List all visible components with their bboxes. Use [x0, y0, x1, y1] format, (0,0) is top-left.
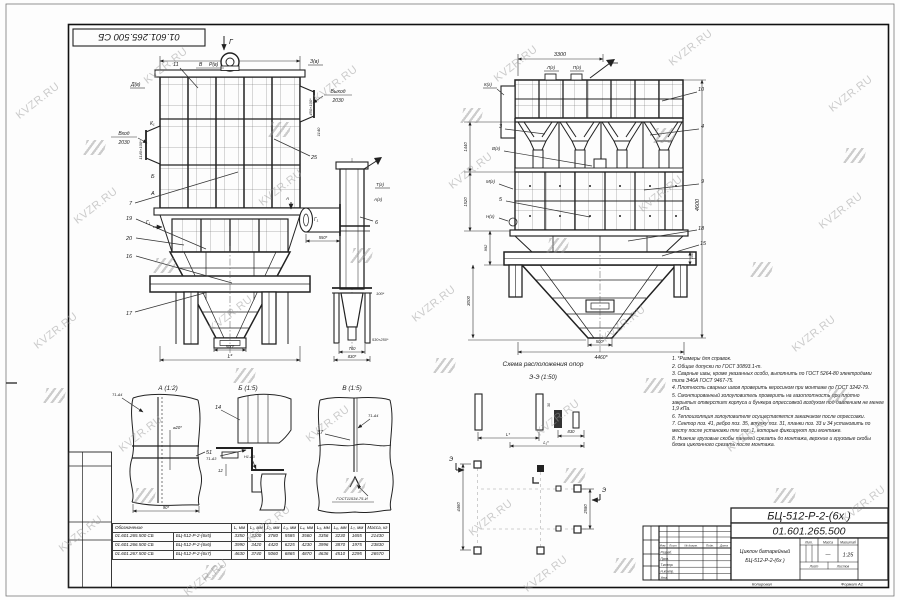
table-cell: 3230 [332, 532, 349, 541]
dim-1140-right: 1140 [316, 127, 321, 136]
pos-15: 15 [700, 241, 707, 247]
detail-v-title: В (1:5) [342, 385, 362, 392]
title-block: Изм. Лист № докум. Подп. Дата Разраб. Пр… [643, 508, 888, 587]
detail-a-dim1: ⌀20* [173, 425, 182, 430]
detail-v-weld: Т1-Δ4 [368, 414, 378, 418]
sig-nkontr: Н.контр. [661, 570, 675, 574]
right-view-drawing: 3300 [463, 52, 707, 361]
top-left-stamp: 01.601.265.500 СБ [73, 29, 205, 46]
table-cell: БЦ-512-Р-2-(6х7) [173, 550, 231, 559]
drawing-sheet: 01.601.265.500 СБ L₄ Г [0, 0, 900, 600]
outlet-label: Выход [330, 89, 345, 95]
pos-4: 4 [701, 124, 704, 130]
mark-mg: М(г) [486, 179, 495, 184]
col-L6: L₆, мм [332, 524, 349, 533]
section-mark-a-pipe: А [285, 196, 289, 201]
table-cell: 3780 [265, 532, 282, 541]
scale-label: Масштаб [840, 541, 856, 545]
table-cell: 3990 [231, 541, 248, 550]
scheme-subtitle: Э-Э (1:50) [529, 375, 557, 381]
detail-a-pos: 51 [206, 450, 212, 456]
scheme-dim-l: L* [506, 432, 510, 437]
stamp-code: 01.601.265.500 СБ [98, 31, 180, 42]
note-item: 8. Нижние грузовые скобы панелей срезать… [672, 436, 884, 449]
table-header-row: Обозначение L, мм L₁, мм L₂, мм L₃, мм L… [113, 524, 390, 533]
pos-19: 19 [126, 216, 132, 222]
pos-5: 5 [499, 197, 503, 203]
table-cell: 3356 [315, 532, 332, 541]
table-cell: 3100 [248, 532, 265, 541]
chg-list: Лист [668, 544, 677, 548]
detail-b-weld1: Т1-Δ3 [206, 457, 217, 461]
table-cell: 6865 [281, 550, 298, 559]
table-row: 01.601.266.500 СББЦ-512-Р-2-(6х6)3990342… [113, 541, 390, 550]
table-cell: 4420 [265, 541, 282, 550]
part-name-2: БЦ-512-Р-2-(6х ) [745, 558, 785, 564]
mass-value: — [825, 552, 832, 558]
dim-1520: 1520 [463, 197, 468, 207]
section-mark-g1-left: Г₁ [146, 220, 151, 226]
scheme-dim-830: 830 [568, 429, 576, 434]
detail-b-title: Б (1:5) [238, 385, 257, 392]
sig-utv: Утв. [661, 576, 668, 580]
scheme-dim-l1: L₁* [543, 440, 549, 445]
sig-tkontr: Т.контр. [661, 563, 674, 567]
scheme-mark-e1: Э [449, 457, 453, 463]
mark-pg: П(г) [573, 65, 582, 70]
table-cell: 4870 [298, 550, 315, 559]
table-cell: 3350 [231, 532, 248, 541]
table-row: 01.601.265.500 СББЦ-512-Р-2-(6х5)3350310… [113, 532, 390, 541]
note-item: 6. Теплоизоляция золоуловителя осуществл… [672, 414, 884, 421]
note-item: 5. Смонтированный золоуловитель проверит… [672, 393, 884, 413]
table-cell: 26570 [365, 550, 389, 559]
detail-mark-a: А [150, 191, 155, 197]
sig-razrab: Разраб. [661, 550, 673, 554]
table-row: 01.601.267.500 СББЦ-512-Р-2-(6х7)4630374… [113, 550, 390, 559]
dim-4460: 4460* [594, 355, 608, 361]
detail-a-weld: Т1-Δ4 [112, 393, 122, 397]
note-item: 7. Сектор поз. 41, ребро поз. 35, втулку… [672, 421, 884, 434]
table-cell: 21430 [365, 532, 389, 541]
table-cell: 3560 [298, 532, 315, 541]
inlet-label: Вход [118, 131, 129, 137]
pos-25: 25 [310, 155, 318, 161]
inlet-size: 2030 [117, 140, 129, 146]
view-mark-rv: Р(в) [209, 62, 219, 68]
table-cell: 4630 [231, 550, 248, 559]
support-scheme: Схема расположения опор Э-Э (1:50) 30 L*… [449, 361, 606, 554]
doc-code: 01.601.265.500 [773, 526, 846, 538]
table-cell: 3870 [332, 541, 349, 550]
detail-mark-b: Б [151, 174, 155, 180]
col-L5: L₅, мм [315, 524, 332, 533]
mark-tg: Т(г) [376, 182, 384, 187]
table-cell: 4510 [332, 550, 349, 559]
dim-530x250: 530×250* [372, 338, 389, 342]
part-name-1: Циклон батарейный [740, 548, 790, 555]
chg-izm: Изм. [660, 544, 667, 548]
mark-vg: В(г) [492, 146, 501, 151]
dim-1140x100-left: 1140×100* [138, 140, 143, 160]
sheets-label: Листов [836, 565, 850, 569]
dim-760: 760 [349, 346, 357, 351]
pos-10: 10 [698, 87, 705, 93]
col-L4: L₄, мм [298, 524, 315, 533]
detail-b-weld2: Н1-Δ3 [244, 455, 256, 459]
dim-500-r: 500* [596, 339, 605, 344]
detail-a-dim2: 90* [163, 505, 170, 510]
table-cell: 4636 [315, 550, 332, 559]
col-mass: Масса, кг [365, 524, 389, 533]
table-cell: 6225 [281, 541, 298, 550]
chg-date: Дата [719, 544, 728, 548]
dim-4600: 4600 [695, 198, 701, 211]
dim-3000: 3000 [466, 295, 471, 306]
table-cell: БЦ-512-Р-2-(6х5) [173, 532, 231, 541]
mark-k1: К₁ [150, 121, 155, 127]
view-mark-v: В [199, 62, 203, 68]
dim-550: 550* [319, 235, 328, 240]
table-cell: 2295 [349, 550, 366, 559]
table-cell: 3420 [248, 541, 265, 550]
note-item: 3. Сварные швы, кроме указанных особо, в… [672, 371, 884, 384]
pos-9: 9 [701, 179, 704, 185]
technical-notes: 1. *Размеры для справок.2. Общие допуски… [672, 356, 884, 450]
pos-7: 7 [129, 201, 133, 207]
dim-l-star: L* [228, 354, 234, 360]
pos-18: 18 [698, 226, 705, 232]
copied-label: Копировал [752, 582, 773, 587]
scale-value: 1:25 [843, 553, 855, 559]
col-L1: L₁, мм [248, 524, 265, 533]
table-cell: 23830 [365, 541, 389, 550]
dim-500: 500* [226, 344, 235, 349]
note-item: 4. Плотность сварных швов проверить керо… [672, 385, 884, 392]
variants-table: Обозначение L, мм L₁, мм L₂, мм L₃, мм L… [112, 523, 390, 560]
drawing-canvas: 01.601.265.500 СБ L₄ Г [0, 0, 900, 600]
col-L7: L₇, мм [349, 524, 366, 533]
scheme-mark-e2: Э [602, 488, 606, 494]
lit-label: Лит. [804, 541, 813, 545]
sheet-frame [6, 4, 894, 596]
detail-b-pos: 14 [215, 405, 221, 411]
dim-1440: 1440 [463, 142, 468, 152]
col-L: L, мм [231, 524, 248, 533]
dim-100-r: 100 [690, 253, 694, 259]
dim-3300: 3300 [554, 52, 567, 58]
col-designation: Обозначение [113, 524, 232, 533]
mark-lg: Л(г) [546, 65, 556, 70]
sheet-label: Лист [809, 565, 819, 569]
table-cell: 4230 [298, 541, 315, 550]
table-cell: 5585 [281, 532, 298, 541]
note-item: 2. Общие допуски по ГОСТ 30893.1-m. [672, 364, 884, 371]
note-item: 1. *Размеры для справок. [672, 356, 884, 363]
col-L2: L₂, мм [265, 524, 282, 533]
chg-doc: № докум. [684, 544, 697, 548]
left-view-drawing: L₄ Г [111, 36, 352, 362]
table-cell: 3996 [315, 541, 332, 550]
doc-number: БЦ-512-Р-2-(6х ) [767, 511, 851, 523]
table-cell: 5060 [265, 550, 282, 559]
table-cell: 1655 [349, 532, 366, 541]
detail-a-title: А (1:2) [157, 385, 178, 392]
table-cell: 01.601.265.500 СБ [113, 532, 174, 541]
dim-830: 830* [348, 354, 357, 359]
mass-label: Масса [823, 541, 833, 545]
mark-ng: Н(г) [486, 214, 495, 219]
detail-a: А (1:2) Т1-Δ4 ⌀20* 51 90* [112, 385, 212, 513]
table-cell: 1975 [349, 541, 366, 550]
scheme-dim-2580: 2580 [583, 504, 588, 515]
chg-sign: Подп. [706, 544, 714, 548]
detail-b-dim: 12 [218, 468, 223, 473]
detail-v-pos: 37 [317, 430, 324, 436]
outlet-size: 2030 [331, 98, 343, 104]
pos-11: 11 [173, 62, 179, 68]
scheme-title: Схема расположения опор [503, 361, 584, 368]
detail-b: Б (1:5) 14 Т1-Δ3 Н1-Δ3 12 [206, 385, 291, 510]
dim-450x100: 450×100* [308, 98, 313, 116]
pos-20: 20 [125, 236, 133, 242]
table-cell: 01.601.266.500 СБ [113, 541, 174, 550]
pos-17: 17 [126, 311, 133, 317]
scheme-dim-30: 30 [547, 403, 551, 407]
sig-prov: Пров. [661, 557, 670, 561]
detail-v: В (1:5) 37 Т1-Δ4 ГОСТ11534-75-И [317, 385, 393, 513]
mark-ag: А(г) [373, 197, 383, 202]
view-mark-zv: З(в) [310, 59, 319, 65]
table-cell: 01.601.267.500 СБ [113, 550, 174, 559]
col-L3: L₃, мм [281, 524, 298, 533]
dim-992: 992 [483, 244, 488, 251]
view-mark-dv: Д(в) [130, 82, 141, 88]
scheme-dim-4460: 4460 [456, 502, 461, 512]
dim-100: 100* [376, 291, 385, 296]
table-cell: 3740 [248, 550, 265, 559]
pos-16: 16 [126, 254, 133, 260]
section-mark-g: Г [229, 39, 234, 46]
detail-v-gost: ГОСТ11534-75-И [336, 496, 367, 501]
pos-6: 6 [375, 220, 379, 226]
table-cell: БЦ-512-Р-2-(6х6) [173, 541, 231, 550]
format-label: Формат А1 [841, 582, 863, 587]
mark-kg: К(г) [484, 82, 492, 87]
section-mark-g1-pipe: Г₁ [314, 217, 319, 223]
